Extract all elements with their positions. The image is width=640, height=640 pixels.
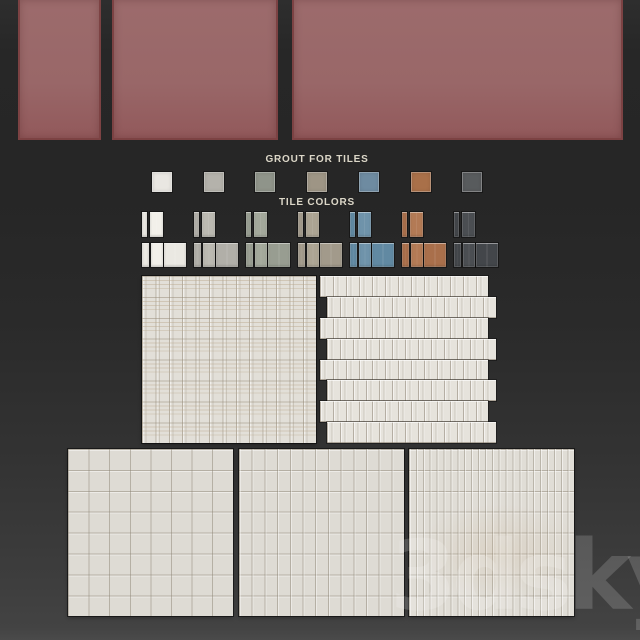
tile-strip-narrow	[194, 212, 199, 237]
tile-strip-medium	[203, 243, 215, 267]
offset-tile-row	[327, 297, 496, 318]
header-panel-right	[292, 0, 623, 140]
tile-color-group-small-charcoal	[454, 212, 498, 237]
offset-tile-row	[320, 276, 488, 297]
tile-strip-medium	[255, 243, 267, 267]
offset-tile-row	[327, 339, 496, 360]
grout-swatch-terracotta	[411, 172, 431, 192]
tile-strip-wide	[254, 212, 267, 237]
tile-strip-medium	[359, 243, 371, 267]
tile-strip-narrow	[402, 212, 407, 237]
tile-color-group-large-charcoal	[454, 243, 498, 267]
tile-strip-narrow	[246, 212, 251, 237]
offset-tile-row	[327, 380, 496, 401]
tile-strip-narrow	[402, 243, 409, 267]
tile-strip-narrow	[350, 212, 355, 237]
sample-panel-offset-vertical-tiles	[320, 276, 488, 443]
tile-square	[164, 243, 186, 267]
tile-presentation-board: GROUT FOR TILES TILE COLORS 3dsky	[0, 0, 640, 640]
tile-strip-wide	[358, 212, 371, 237]
grout-swatch-white	[152, 172, 172, 192]
tile-color-group-small-light-gray	[194, 212, 238, 237]
tile-color-group-large-steel-blue	[350, 243, 394, 267]
tile-color-group-large-taupe	[298, 243, 342, 267]
tile-strip-wide	[462, 212, 475, 237]
offset-tile-row	[327, 422, 496, 443]
tile-square	[476, 243, 498, 267]
tile-strip-wide	[150, 212, 163, 237]
tile-strip-medium	[463, 243, 475, 267]
sample-panel-square-grid	[68, 449, 233, 616]
header-panel-center	[112, 0, 278, 140]
grout-swatch-sage-gray	[255, 172, 275, 192]
tile-color-group-small-terracotta	[402, 212, 446, 237]
grout-swatch-taupe	[307, 172, 327, 192]
sample-panel-vertical-rect-grid	[239, 449, 404, 616]
tile-strip-medium	[151, 243, 163, 267]
tile-square	[216, 243, 238, 267]
tile-color-group-large-sage-gray	[246, 243, 290, 267]
tile-strip-narrow	[298, 243, 305, 267]
grout-section-title: GROUT FOR TILES	[0, 154, 634, 165]
grout-swatch-steel-blue	[359, 172, 379, 192]
tile-strip-wide	[410, 212, 423, 237]
tile-color-group-large-terracotta	[402, 243, 446, 267]
tile-square	[320, 243, 342, 267]
tile-strip-narrow	[350, 243, 357, 267]
tile-colors-section-title: TILE COLORS	[0, 197, 634, 208]
sample-panel-stacked-lines-mosaic	[142, 276, 316, 443]
sample-panel-fluted-strip-grid	[409, 449, 574, 616]
tile-color-group-large-light-gray	[194, 243, 238, 267]
tile-square	[372, 243, 394, 267]
tile-strip-narrow	[194, 243, 201, 267]
tile-strip-narrow	[298, 212, 303, 237]
tile-square	[268, 243, 290, 267]
tile-color-group-small-sage-gray	[246, 212, 290, 237]
tile-strip-narrow	[454, 212, 459, 237]
tile-color-group-small-steel-blue	[350, 212, 394, 237]
tile-strip-narrow	[454, 243, 461, 267]
grout-swatch-charcoal	[462, 172, 482, 192]
tile-square	[424, 243, 446, 267]
tile-strip-wide	[202, 212, 215, 237]
tile-strip-medium	[307, 243, 319, 267]
tile-strip-wide	[306, 212, 319, 237]
tile-strip-medium	[411, 243, 423, 267]
offset-tile-row	[320, 318, 488, 339]
tile-strip-narrow	[246, 243, 253, 267]
tile-strip-narrow	[142, 212, 147, 237]
tile-color-group-small-white	[142, 212, 186, 237]
tile-color-group-small-taupe	[298, 212, 342, 237]
tile-color-group-large-white	[142, 243, 186, 267]
grout-swatch-light-gray	[204, 172, 224, 192]
offset-tile-row	[320, 401, 488, 422]
offset-tile-row	[320, 360, 488, 381]
header-panel-left	[18, 0, 101, 140]
tile-strip-narrow	[142, 243, 149, 267]
